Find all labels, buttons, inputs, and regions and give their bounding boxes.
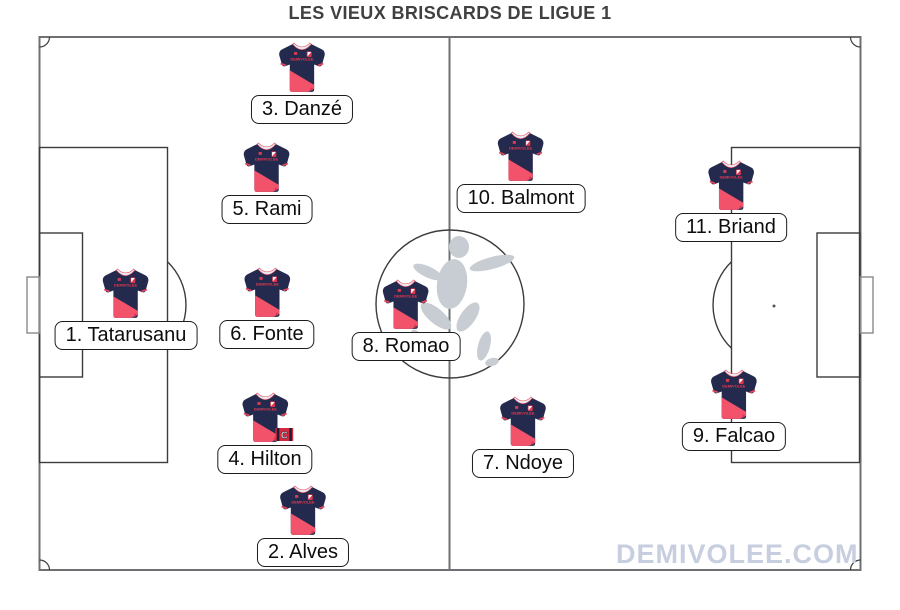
player-alves: 2. Alves xyxy=(257,482,349,567)
penalty-arc-right xyxy=(713,262,731,349)
player-fonte: 6. Fonte xyxy=(219,264,314,349)
goal-right xyxy=(861,277,874,333)
player-label: 9. Falcao xyxy=(682,422,786,451)
jersey-icon xyxy=(701,157,761,214)
jersey-icon xyxy=(376,276,436,333)
player-label: 2. Alves xyxy=(257,538,349,567)
player-rami: 5. Rami xyxy=(222,139,313,224)
player-label: 1. Tatarusanu xyxy=(55,321,198,350)
player-briand: 11. Briand xyxy=(675,157,787,242)
captain-armband-icon: C xyxy=(275,428,293,441)
player-label: 10. Balmont xyxy=(457,184,586,213)
goal-area-right xyxy=(817,233,860,377)
jersey-icon xyxy=(237,139,297,196)
player-balmont: 10. Balmont xyxy=(457,128,586,213)
player-label: 6. Fonte xyxy=(219,320,314,349)
jersey-icon xyxy=(493,393,553,450)
jersey-icon xyxy=(491,128,551,185)
player-hilton: C 4. Hilton xyxy=(217,389,312,474)
player-label: 4. Hilton xyxy=(217,445,312,474)
site-watermark: DEMIVOLEE.COM xyxy=(616,539,859,570)
jersey-icon xyxy=(96,265,156,322)
player-label: 5. Rami xyxy=(222,195,313,224)
penalty-spot-right xyxy=(773,305,776,308)
player-label: 7. Ndoye xyxy=(472,449,574,478)
player-falcao: 9. Falcao xyxy=(682,366,786,451)
lineup-graphic: DEMIVOLEE xyxy=(0,0,900,610)
svg-text:C: C xyxy=(280,431,287,442)
jersey-icon xyxy=(237,264,297,321)
page-title: LES VIEUX BRISCARDS DE LIGUE 1 xyxy=(0,3,900,24)
goal-left xyxy=(27,277,40,333)
player-label: 11. Briand xyxy=(675,213,787,242)
jersey-icon xyxy=(272,39,332,96)
player-ndoye: 7. Ndoye xyxy=(472,393,574,478)
player-romao: 8. Romao xyxy=(352,276,461,361)
player-tatarusanu: 1. Tatarusanu xyxy=(55,265,198,350)
player-label: 3. Danzé xyxy=(251,95,353,124)
player-label: 8. Romao xyxy=(352,332,461,361)
jersey-icon xyxy=(704,366,764,423)
jersey-icon xyxy=(273,482,333,539)
player-danze: 3. Danzé xyxy=(251,39,353,124)
